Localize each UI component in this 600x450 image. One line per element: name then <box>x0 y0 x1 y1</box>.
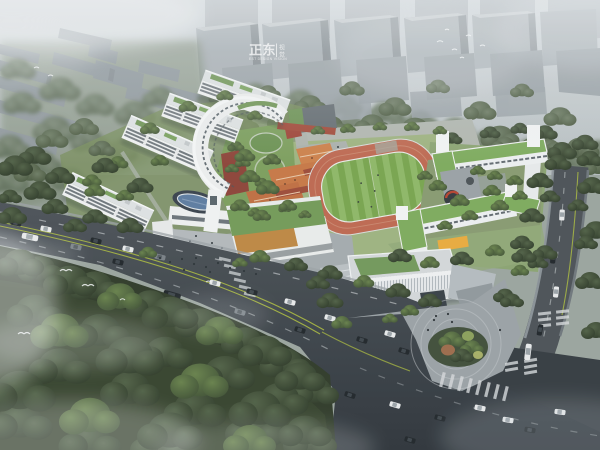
svg-text:正东: 正东 <box>249 43 276 58</box>
svg-text:EST DESIGN VISION: EST DESIGN VISION <box>249 57 287 61</box>
svg-text:视: 视 <box>279 44 285 52</box>
